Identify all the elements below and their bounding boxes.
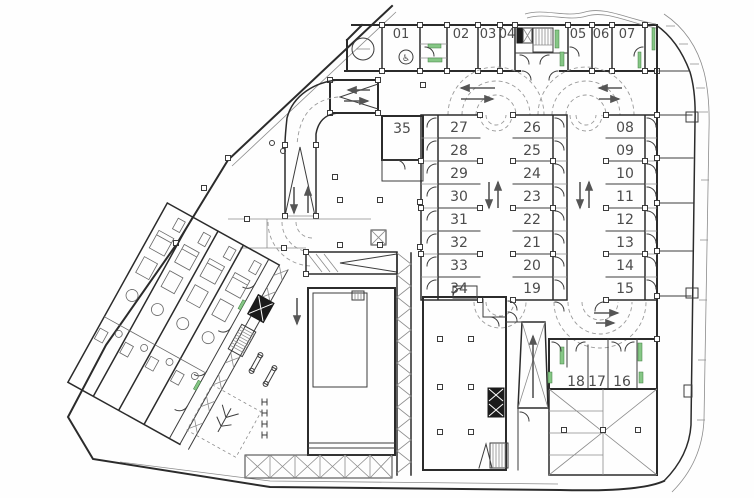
stall-17-label: 17 (588, 374, 606, 390)
closet-door (555, 30, 559, 48)
stall-06-label: 06 (593, 27, 610, 42)
stall-27-label: 27 (450, 120, 468, 136)
stair-elevator-core (515, 28, 568, 66)
stall-22-label: 22 (523, 212, 541, 228)
tree-icon (210, 404, 238, 435)
closet-door (652, 28, 655, 50)
stall-12-label: 12 (616, 212, 634, 228)
technical-room (423, 286, 508, 470)
site-outline (68, 6, 709, 492)
elevator-icon (517, 28, 523, 43)
stall-13-label: 13 (616, 235, 634, 251)
parking-column-b: 26 25 24 23 22 21 20 19 (511, 113, 568, 303)
exit-ramp (506, 301, 548, 470)
facade-ticks (666, 26, 709, 420)
floor-plan-page: 01 02 03 04 05 06 07 ♿ (0, 0, 754, 498)
top-parking-row: 01 02 03 04 05 06 07 ♿ (345, 23, 660, 81)
stall-21-label: 21 (523, 235, 541, 251)
side-ramp (306, 252, 397, 274)
accessible-parking-icon: ♿ (402, 54, 410, 64)
pool-room (245, 253, 411, 478)
planting-area (187, 385, 261, 458)
stall-31-label: 31 (450, 212, 468, 228)
stall-35-label: 35 (393, 121, 411, 137)
fan-room-wall (347, 25, 362, 71)
elevator-pair-icon (488, 388, 504, 417)
floor-plan-canvas: 01 02 03 04 05 06 07 ♿ (0, 0, 754, 498)
stall-05-label: 05 (570, 27, 587, 42)
closet-door (428, 44, 441, 48)
stall-32-label: 32 (450, 235, 468, 251)
stall-14-label: 14 (616, 258, 634, 274)
closet-door (638, 52, 641, 68)
apartment-stairs-icon (228, 324, 256, 356)
entry-ramp (283, 78, 381, 219)
stall-02-label: 02 (453, 27, 470, 42)
stall-26-label: 26 (523, 120, 541, 136)
stall-09-label: 09 (616, 143, 634, 159)
bottom-right-block: 18 17 16 (548, 339, 657, 475)
closet-door (560, 52, 564, 66)
stall-15-label: 15 (616, 281, 634, 297)
stall-18-label: 18 (567, 374, 585, 390)
ramp-slope (285, 147, 315, 216)
apartment-elevator-icon (248, 295, 274, 323)
stall-07-label: 07 (619, 27, 636, 42)
closet-door (193, 380, 200, 390)
stall-28-label: 28 (450, 143, 468, 159)
stall-10-label: 10 (616, 166, 634, 182)
pool-basin (313, 293, 367, 387)
stall-01-label: 01 (393, 27, 410, 42)
stall-11-label: 11 (616, 189, 634, 205)
apartments-wing (68, 203, 292, 451)
stall-03-label: 03 (480, 27, 497, 42)
bike-rack-icons (262, 399, 267, 438)
stall-24-label: 24 (523, 166, 541, 182)
stall-20-label: 20 (523, 258, 541, 274)
stairs-icon (479, 443, 508, 468)
closet-door (428, 58, 442, 62)
stall-25-label: 25 (523, 143, 541, 159)
lightwell (549, 389, 657, 475)
yard-objects (187, 352, 278, 458)
aisle-arrows (297, 182, 589, 324)
stall-04-label: 04 (499, 27, 516, 42)
closet-door (638, 343, 642, 361)
stall-23-label: 23 (523, 189, 541, 205)
stall-29-label: 29 (450, 166, 468, 182)
stall-16-label: 16 (613, 374, 631, 390)
motorcycle-icon (248, 352, 264, 375)
closet-door (548, 372, 552, 383)
right-facade-curve (656, 25, 695, 481)
closet-door (639, 372, 643, 383)
stall-30-label: 30 (450, 189, 468, 205)
closet-door (238, 300, 245, 310)
stall-19-label: 19 (523, 281, 541, 297)
curve-wall-inner (316, 113, 338, 145)
motorcycle-icon (262, 365, 278, 388)
stall-33-label: 33 (450, 258, 468, 274)
parking-column-c: 08 09 10 11 12 13 14 15 (604, 25, 658, 475)
stall-08-label: 08 (616, 120, 634, 136)
turning-area-bottom (474, 302, 646, 348)
